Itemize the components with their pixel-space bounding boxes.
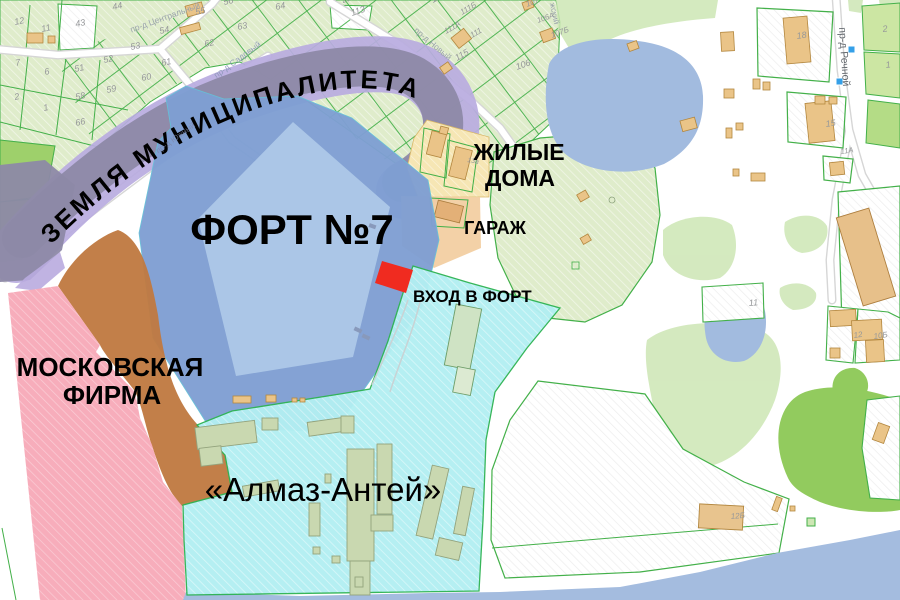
parcel-number: 12 bbox=[853, 330, 864, 340]
parcel-number: 12Б bbox=[730, 511, 745, 521]
shed bbox=[724, 89, 734, 98]
building bbox=[371, 515, 393, 531]
parcel-number: 60 bbox=[140, 71, 152, 83]
entrance-label: ВХОД В ФОРТ bbox=[413, 287, 532, 306]
building bbox=[262, 418, 278, 430]
shed bbox=[300, 398, 305, 402]
boundary-line bbox=[2, 528, 16, 600]
building bbox=[355, 577, 363, 587]
building bbox=[332, 556, 340, 563]
parcel-number: 44 bbox=[111, 0, 123, 12]
parcel-number: 64 bbox=[274, 0, 286, 12]
parcel-2 bbox=[862, 3, 900, 52]
fort-label: ФОРТ №7 bbox=[190, 206, 393, 253]
green-blob bbox=[663, 217, 736, 280]
shed bbox=[292, 398, 297, 402]
shed bbox=[751, 173, 765, 181]
parcel-number: 62 bbox=[203, 37, 215, 49]
building bbox=[439, 126, 448, 135]
parcel-number: 53 bbox=[129, 40, 141, 52]
shed bbox=[733, 169, 739, 176]
map-screenshot: ЗЕМЛЯ МУНИЦИПАЛИТЕТА пр-д Центральныйпр-… bbox=[0, 0, 900, 600]
building bbox=[199, 446, 223, 467]
residential-label-2: ДОМА bbox=[485, 165, 555, 191]
moscow-firm-label-2: ФИРМА bbox=[63, 380, 162, 410]
green-parcel-right bbox=[866, 100, 900, 148]
parcel-number: 63 bbox=[236, 20, 248, 32]
shed bbox=[830, 348, 840, 358]
shed bbox=[48, 36, 55, 43]
parcel-number: 66 bbox=[74, 116, 86, 128]
building bbox=[313, 547, 320, 554]
parcel-topright-corner bbox=[862, 396, 900, 500]
parcel-number: 59 bbox=[105, 83, 117, 95]
shed bbox=[721, 32, 735, 52]
green-blob bbox=[780, 283, 817, 310]
parcel-number: 18 bbox=[796, 30, 807, 41]
shed bbox=[753, 79, 760, 89]
map-canvas: ЗЕМЛЯ МУНИЦИПАЛИТЕТА пр-д Центральныйпр-… bbox=[0, 0, 900, 600]
parcel-number: 43 bbox=[74, 17, 86, 29]
shed bbox=[807, 518, 815, 526]
shed bbox=[736, 123, 743, 130]
parcel-number: 51 bbox=[73, 62, 85, 74]
shed bbox=[790, 506, 795, 511]
parcel-1 bbox=[864, 52, 900, 98]
bright-green-blob-2 bbox=[832, 368, 868, 400]
parcel-number: 61 bbox=[160, 56, 172, 68]
pond bbox=[546, 39, 703, 172]
building-11a bbox=[829, 161, 844, 175]
parcel-number: 11А bbox=[840, 145, 854, 156]
parcel-number: 12 bbox=[13, 15, 25, 27]
green-blob bbox=[848, 0, 863, 13]
shed bbox=[829, 97, 837, 104]
building bbox=[865, 340, 884, 363]
residential-label-1: ЖИЛЫЕ bbox=[472, 139, 564, 165]
green-blob bbox=[784, 216, 827, 253]
parcel-number: 11 bbox=[748, 297, 758, 308]
shed bbox=[233, 396, 251, 403]
shed bbox=[27, 33, 43, 43]
shed bbox=[815, 96, 825, 104]
parcel-number: 52 bbox=[102, 53, 114, 65]
parcel-number: 58 bbox=[74, 90, 86, 102]
shed bbox=[763, 82, 770, 90]
parcels-topright bbox=[757, 3, 900, 363]
building bbox=[341, 416, 354, 433]
moscow-firm-label-1: МОСКОВСКАЯ bbox=[17, 352, 204, 382]
almaz-antey-label: «Алмаз-Антей» bbox=[205, 471, 442, 508]
parcel-number: 54 bbox=[158, 24, 170, 36]
shed bbox=[266, 395, 276, 402]
garage-label: ГАРАЖ bbox=[464, 218, 526, 238]
shed bbox=[726, 128, 732, 138]
